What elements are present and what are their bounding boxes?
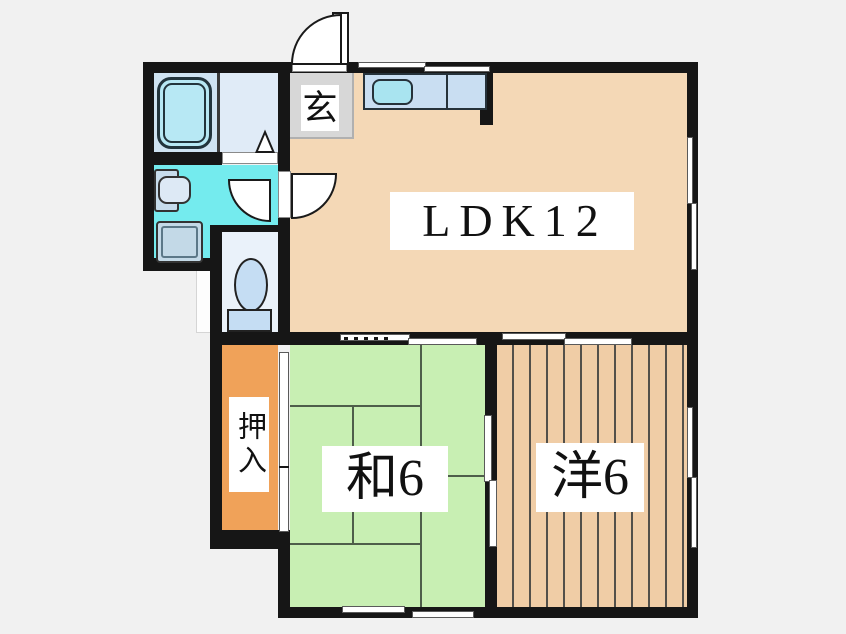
slider-ldk-wroom (564, 338, 632, 345)
jroom-window-sash (412, 611, 474, 618)
bathtub (157, 77, 212, 149)
fusuma-ldk-jroom (408, 338, 477, 345)
washing-machine-pan-inner (161, 226, 198, 258)
jroom-window-sash (342, 606, 405, 613)
bathroom-door-threshold (222, 152, 278, 164)
toilet-bowl (234, 258, 268, 312)
closet-label-text: 押入 (235, 411, 264, 479)
western-room-label: 洋6 (536, 443, 644, 512)
ldk-window-sash (687, 137, 693, 204)
bathroom-floor-dry-side (220, 73, 278, 152)
tatami-line (290, 405, 422, 407)
ldk-label-text: LDK12 (422, 198, 608, 244)
fusuma-dot-pattern (344, 337, 390, 340)
washroom-door-leaf (278, 171, 291, 218)
tatami-line (290, 543, 422, 545)
fusuma-closet-tick (279, 466, 289, 468)
bathtub-inner-rim (163, 83, 206, 143)
entrance-door-leaf (333, 13, 348, 64)
kitchen-sink (372, 79, 413, 105)
fusuma-ldk-jroom (340, 334, 410, 341)
wroom-window-sash (691, 477, 697, 548)
wall-bottom (278, 607, 698, 618)
ldk-label: LDK12 (390, 192, 634, 250)
kitchen-window-sash (424, 66, 490, 72)
slider-jroom-wroom (489, 480, 497, 547)
entrance-threshold (292, 63, 347, 72)
entrance-label-text: 玄 (302, 91, 337, 126)
entrance-label: 玄 (301, 85, 339, 131)
wall-jroom-left (278, 530, 290, 618)
japanese-room-label: 和6 (322, 446, 448, 512)
washing-machine-pan (156, 221, 203, 263)
slider-jroom-wroom (484, 415, 492, 482)
washbasin-bowl (158, 176, 191, 204)
wall-left-lower (210, 225, 222, 549)
kitchen-counter-divider (446, 74, 448, 109)
japanese-room-label-text: 和6 (346, 453, 424, 505)
bathroom-divider-line (217, 73, 220, 152)
wall-left-upper (143, 62, 154, 271)
ldk-window-sash (691, 203, 697, 270)
closet-label: 押入 (229, 397, 269, 492)
toilet-tank (227, 309, 272, 332)
wroom-window-sash (687, 407, 693, 478)
kitchen-window-sash (358, 62, 426, 68)
wall-bathroom-bottom (143, 152, 222, 165)
western-room-label-text: 洋6 (551, 452, 629, 504)
slider-ldk-wroom (502, 333, 566, 340)
wall-toilet-top (213, 225, 280, 232)
fusuma-closet (279, 352, 289, 532)
entrance-door-swing (292, 15, 341, 64)
floorplan-canvas: LDK12 和6 洋6 押入 玄 (0, 0, 846, 634)
